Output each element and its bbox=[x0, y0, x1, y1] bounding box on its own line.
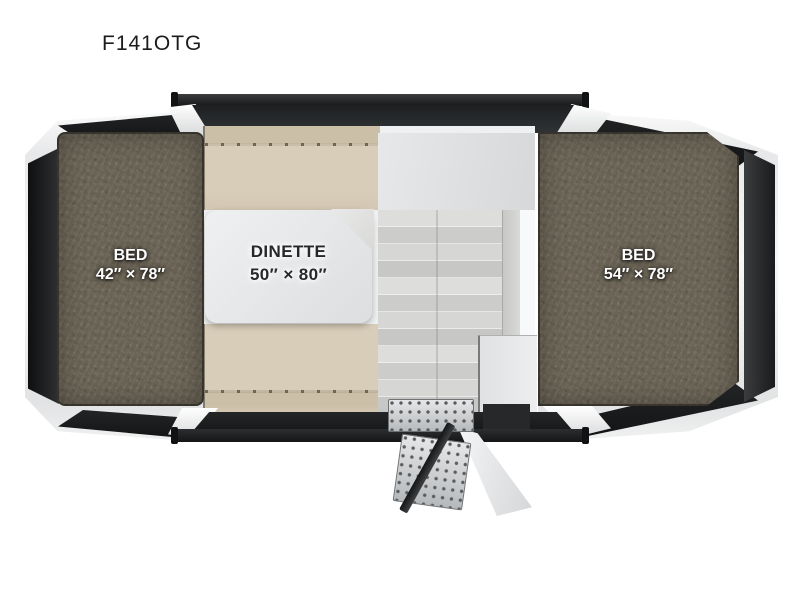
right-bed-size: 54″ × 78″ bbox=[546, 265, 731, 284]
left-bed-name: BED bbox=[57, 246, 204, 265]
rail-end-cap bbox=[171, 427, 178, 444]
dinette-size: 50″ × 80″ bbox=[205, 263, 372, 286]
dinette-label: DINETTE 50″ × 80″ bbox=[205, 240, 372, 286]
entry-step-platform bbox=[388, 399, 474, 432]
counter-cabinet bbox=[378, 133, 535, 211]
right-bed-name: BED bbox=[546, 246, 731, 265]
roof-rail-top bbox=[176, 94, 584, 106]
right-tent-end-fabric-panel bbox=[744, 150, 775, 402]
left-tent-end-fabric-panel bbox=[28, 148, 59, 404]
rail-end-cap bbox=[582, 427, 589, 444]
floorplan-canvas: F141OTG DINETTE 50″ × 80″ bbox=[0, 0, 800, 600]
dinette-bench-rear bbox=[203, 324, 380, 412]
rail-end-cap bbox=[582, 92, 589, 109]
left-bed-label: BED 42″ × 78″ bbox=[57, 246, 204, 284]
right-bed-label: BED 54″ × 78″ bbox=[546, 246, 731, 284]
roof-rail-bottom bbox=[176, 429, 584, 442]
dinette-bench-front bbox=[203, 126, 380, 210]
dinette-name: DINETTE bbox=[205, 240, 372, 263]
left-bed-size: 42″ × 78″ bbox=[57, 265, 204, 284]
entry-doorway bbox=[483, 404, 530, 429]
rear-corner-cabinet bbox=[478, 335, 537, 415]
floorplan-model-title: F141OTG bbox=[102, 32, 202, 56]
